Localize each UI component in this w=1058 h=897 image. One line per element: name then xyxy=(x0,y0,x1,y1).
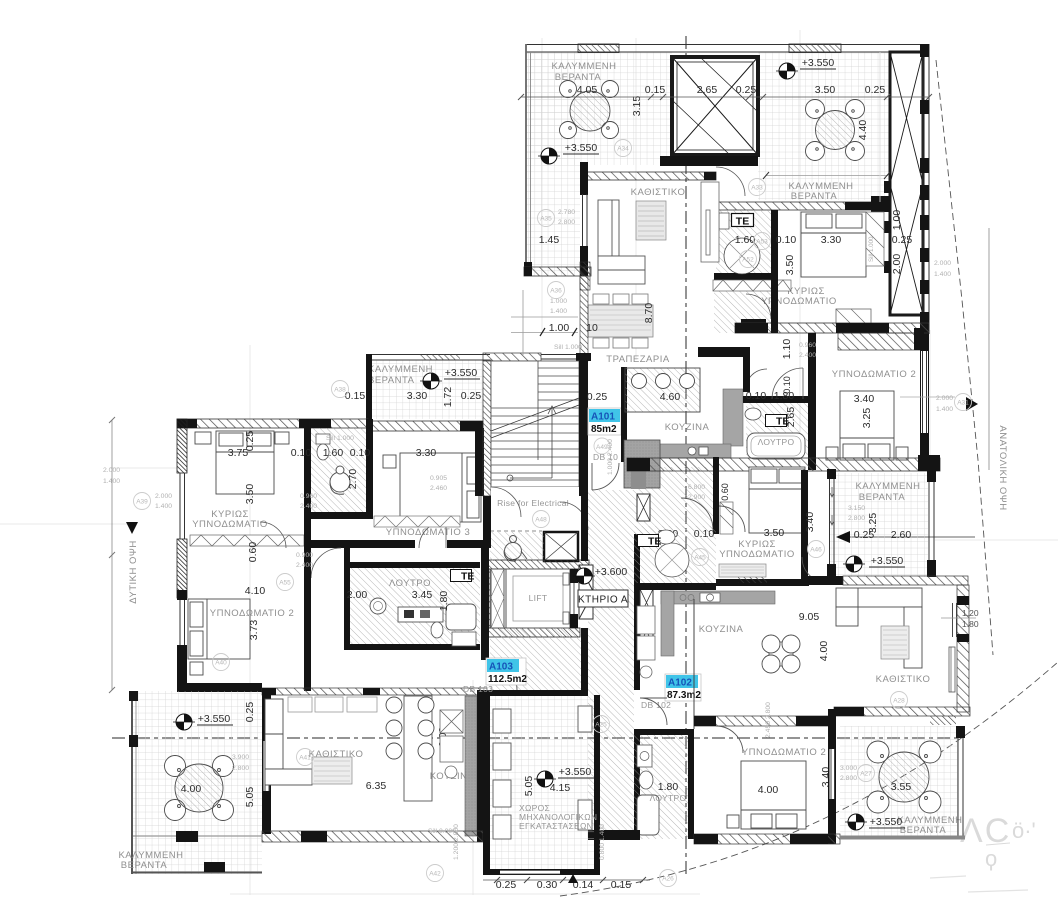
svg-text:4.10: 4.10 xyxy=(245,585,266,597)
svg-text:+3.550: +3.550 xyxy=(445,367,478,379)
svg-text:ΚΑΘΙΣΤΙΚΟ: ΚΑΘΙΣΤΙΚΟ xyxy=(876,674,931,685)
svg-text:+3.550: +3.550 xyxy=(559,766,592,778)
svg-text:3.000: 3.000 xyxy=(840,765,857,772)
svg-text:4.00: 4.00 xyxy=(758,784,779,796)
svg-text:+3.600: +3.600 xyxy=(595,566,628,578)
svg-text:ΤΕ: ΤΕ xyxy=(648,536,661,548)
svg-text:0.25: 0.25 xyxy=(496,879,517,891)
svg-text:3.30: 3.30 xyxy=(416,447,437,459)
svg-text:1.400: 1.400 xyxy=(936,406,953,413)
svg-text:A33: A33 xyxy=(751,185,763,192)
svg-text:0.960: 0.960 xyxy=(799,342,816,349)
svg-text:5.05: 5.05 xyxy=(523,776,535,797)
svg-text:ΚΟΥΖΙΝΑ: ΚΟΥΖΙΝΑ xyxy=(699,624,744,635)
svg-text:2.60: 2.60 xyxy=(891,529,912,541)
svg-text:ӧ·': ӧ·' xyxy=(1012,818,1036,843)
svg-text:ϙ: ϙ xyxy=(985,846,997,871)
svg-text:0.10: 0.10 xyxy=(776,234,797,246)
svg-text:2.800: 2.800 xyxy=(848,515,865,522)
svg-text:2.900: 2.900 xyxy=(688,494,705,501)
svg-text:A103: A103 xyxy=(489,662,513,673)
svg-text:0.10: 0.10 xyxy=(291,447,312,459)
svg-text:3.15: 3.15 xyxy=(631,96,643,117)
svg-text:A28: A28 xyxy=(893,698,905,705)
svg-text:ΕΓΚΑΤΑΣΤΑΣΕΩΝ: ΕΓΚΑΤΑΣΤΑΣΕΩΝ xyxy=(519,821,593,831)
svg-text:1.400: 1.400 xyxy=(934,271,951,278)
svg-text:ΤΕ: ΤΕ xyxy=(461,571,474,583)
svg-text:0.25: 0.25 xyxy=(892,234,913,246)
svg-text:A39: A39 xyxy=(136,499,148,506)
svg-text:1.000 2.400: 1.000 2.400 xyxy=(607,439,614,475)
svg-text:Rise for Electrical: Rise for Electrical xyxy=(497,498,569,508)
svg-text:2.000: 2.000 xyxy=(155,493,172,500)
svg-text:A26: A26 xyxy=(662,876,674,883)
svg-text:4.00: 4.00 xyxy=(818,641,830,662)
svg-text:1.400: 1.400 xyxy=(155,503,172,510)
svg-text:A34: A34 xyxy=(617,146,629,153)
svg-text:ΛΟΥΤΡΟ: ΛΟΥΤΡΟ xyxy=(389,578,431,589)
svg-text:A36: A36 xyxy=(550,288,562,295)
svg-text:0.15: 0.15 xyxy=(611,879,632,891)
svg-text:3.45: 3.45 xyxy=(412,589,433,601)
svg-text:0.960: 0.960 xyxy=(300,493,317,500)
svg-text:A41: A41 xyxy=(299,755,311,762)
svg-text:ΛΟΥΤΡΟ: ΛΟΥΤΡΟ xyxy=(758,437,795,447)
svg-text:+3.550: +3.550 xyxy=(802,57,835,69)
svg-text:4.60: 4.60 xyxy=(660,391,681,403)
svg-text:2.400: 2.400 xyxy=(300,503,317,510)
svg-text:0.800 1.400: 0.800 1.400 xyxy=(599,824,606,860)
svg-text:0.900: 0.900 xyxy=(296,552,313,559)
svg-text:4.40: 4.40 xyxy=(857,120,869,141)
svg-text:3.50: 3.50 xyxy=(244,484,256,505)
svg-text:1.10: 1.10 xyxy=(781,339,793,360)
svg-text:10: 10 xyxy=(586,322,598,334)
svg-text:0.25: 0.25 xyxy=(244,702,256,723)
svg-text:0.25: 0.25 xyxy=(244,431,256,452)
svg-text:1.000: 1.000 xyxy=(550,298,567,305)
svg-text:DB 102: DB 102 xyxy=(641,700,671,710)
svg-text:0.25: 0.25 xyxy=(461,390,482,402)
svg-text:+3.550: +3.550 xyxy=(198,713,231,725)
svg-text:ΔΥΤΙΚΗ ΟΨΗ: ΔΥΤΙΚΗ ΟΨΗ xyxy=(128,540,139,603)
svg-text:2.000: 2.000 xyxy=(103,467,120,474)
svg-text:0.905: 0.905 xyxy=(430,475,447,482)
svg-text:87.3m2: 87.3m2 xyxy=(667,690,701,701)
svg-text:2.000: 2.000 xyxy=(934,260,951,267)
svg-text:ΤΕ: ΤΕ xyxy=(736,216,749,228)
svg-text:85m2: 85m2 xyxy=(591,424,617,435)
svg-text:3.50: 3.50 xyxy=(784,255,796,276)
svg-text:2.800: 2.800 xyxy=(840,775,857,782)
svg-text:ΚΑΘΙΣΤΙΚΟ: ΚΑΘΙΣΤΙΚΟ xyxy=(631,187,686,198)
svg-text:2.800: 2.800 xyxy=(232,765,249,772)
svg-text:1.45: 1.45 xyxy=(539,234,560,246)
svg-text:A52: A52 xyxy=(742,257,754,264)
svg-text:+3.550: +3.550 xyxy=(871,555,904,567)
svg-text:A48: A48 xyxy=(535,517,547,524)
svg-text:0.10: 0.10 xyxy=(782,376,792,394)
svg-text:ΥΠΝΟΔΩΜΑΤΙΟ 2: ΥΠΝΟΔΩΜΑΤΙΟ 2 xyxy=(832,369,917,380)
svg-text:0.25: 0.25 xyxy=(865,84,886,96)
svg-text:ΥΠΝΟΔΩΜΑΤΙΟ 2: ΥΠΝΟΔΩΜΑΤΙΟ 2 xyxy=(742,747,827,758)
svg-text:0.60: 0.60 xyxy=(247,542,259,563)
svg-text:ΒΕΡΑΝΤΑ: ΒΕΡΑΝΤΑ xyxy=(555,72,602,83)
svg-text:ΑΝΑΤΟΛΙΚΗ ΟΨΗ: ΑΝΑΤΟΛΙΚΗ ΟΨΗ xyxy=(997,425,1008,510)
svg-text:ΥΠΝΟΔΩΜΑΤΙΟ: ΥΠΝΟΔΩΜΑΤΙΟ xyxy=(719,549,795,560)
svg-text:4.15: 4.15 xyxy=(550,782,571,794)
svg-text:+3.550: +3.550 xyxy=(870,816,903,828)
svg-text:1.60: 1.60 xyxy=(323,447,344,459)
svg-text:1.20: 1.20 xyxy=(962,608,979,618)
svg-text:6.800: 6.800 xyxy=(688,484,705,491)
svg-text:ΚΑΛΥΜΜΕΝΗ: ΚΑΛΥΜΜΕΝΗ xyxy=(368,364,433,375)
svg-text:ΒΕΡΑΝΤΑ: ΒΕΡΑΝΤΑ xyxy=(859,492,906,503)
svg-text:2.400: 2.400 xyxy=(799,352,816,359)
svg-text:112.5m2: 112.5m2 xyxy=(488,674,527,685)
svg-text:0.25: 0.25 xyxy=(736,84,757,96)
svg-text:ΥΠΝΟΔΩΜΑΤΙΟ 2: ΥΠΝΟΔΩΜΑΤΙΟ 2 xyxy=(210,608,295,619)
svg-text:ΥΠΝΟΔΩΜΑΤΙΟ: ΥΠΝΟΔΩΜΑΤΙΟ xyxy=(192,519,268,530)
svg-text:+3.550: +3.550 xyxy=(565,142,598,154)
svg-text:1.80: 1.80 xyxy=(962,619,979,629)
svg-text:A102: A102 xyxy=(668,678,692,689)
svg-text:2.65: 2.65 xyxy=(697,84,718,96)
svg-text:1.80: 1.80 xyxy=(438,591,450,612)
svg-text:2.65: 2.65 xyxy=(785,407,797,428)
svg-text:ΛC: ΛC xyxy=(960,812,1011,850)
svg-text:1.200 2.800: 1.200 2.800 xyxy=(453,824,460,860)
svg-text:2.00: 2.00 xyxy=(347,589,368,601)
svg-text:A27: A27 xyxy=(860,771,872,778)
svg-text:3.73: 3.73 xyxy=(248,620,260,641)
svg-text:A46: A46 xyxy=(810,547,822,554)
svg-text:2.000: 2.000 xyxy=(936,395,953,402)
svg-text:0.25: 0.25 xyxy=(587,391,608,403)
svg-text:3.50: 3.50 xyxy=(764,527,785,539)
svg-text:A53: A53 xyxy=(756,239,768,246)
svg-text:Sill 1.000: Sill 1.000 xyxy=(554,344,582,351)
svg-text:1.80: 1.80 xyxy=(658,781,679,793)
svg-text:1.60: 1.60 xyxy=(735,234,756,246)
svg-text:ΒΕΡΑΝΤΑ: ΒΕΡΑΝΤΑ xyxy=(900,825,947,836)
svg-text:3.30: 3.30 xyxy=(407,390,428,402)
svg-text:9.05: 9.05 xyxy=(799,611,820,623)
svg-text:ΚΟΥΖΙΝΑ: ΚΟΥΖΙΝΑ xyxy=(665,422,710,433)
svg-text:2.70: 2.70 xyxy=(347,469,359,490)
svg-text:2.800: 2.800 xyxy=(558,219,575,226)
svg-text:2.460: 2.460 xyxy=(430,485,447,492)
svg-text:4.00: 4.00 xyxy=(181,783,202,795)
svg-text:3.25: 3.25 xyxy=(867,513,879,534)
svg-text:1.00: 1.00 xyxy=(891,210,903,231)
svg-text:A31: A31 xyxy=(957,400,969,407)
svg-text:3.50: 3.50 xyxy=(815,84,836,96)
svg-text:A45: A45 xyxy=(694,555,706,562)
svg-text:0.15: 0.15 xyxy=(645,84,666,96)
svg-text:5.05: 5.05 xyxy=(244,787,256,808)
svg-text:3.40: 3.40 xyxy=(804,512,816,533)
svg-text:A25: A25 xyxy=(595,722,607,729)
svg-text:3.25: 3.25 xyxy=(861,408,873,429)
svg-text:1.72: 1.72 xyxy=(442,387,454,408)
svg-text:3.55: 3.55 xyxy=(891,781,912,793)
svg-text:Sill 1.000: Sill 1.000 xyxy=(868,236,875,262)
svg-text:8.70: 8.70 xyxy=(643,303,655,324)
svg-text:0.10: 0.10 xyxy=(350,447,371,459)
svg-text:A42: A42 xyxy=(429,871,441,878)
svg-text:A40: A40 xyxy=(215,660,227,667)
svg-text:ΥΠΝΟΔΩΜΑΤΙΟ 3: ΥΠΝΟΔΩΜΑΤΙΟ 3 xyxy=(386,527,471,538)
svg-text:4.05: 4.05 xyxy=(577,84,598,96)
svg-text:3.30: 3.30 xyxy=(821,234,842,246)
svg-text:2.450 2.800: 2.450 2.800 xyxy=(765,702,772,738)
svg-text:DB 103: DB 103 xyxy=(463,684,493,694)
svg-text:ΚΤΗΡΙΟ Α: ΚΤΗΡΙΟ Α xyxy=(578,595,628,606)
svg-text:A38: A38 xyxy=(334,387,346,394)
svg-text:Sill 1.000: Sill 1.000 xyxy=(326,435,354,442)
svg-text:2.00: 2.00 xyxy=(891,254,903,275)
svg-text:ΒΕΡΑΝΤΑ: ΒΕΡΑΝΤΑ xyxy=(368,375,415,386)
svg-text:2.400: 2.400 xyxy=(296,562,313,569)
svg-text:DB 10: DB 10 xyxy=(593,452,618,462)
svg-text:LIFT: LIFT xyxy=(529,593,548,603)
svg-text:1.400: 1.400 xyxy=(103,478,120,485)
svg-text:Sill 0.000: Sill 0.000 xyxy=(428,828,456,835)
svg-text:0.30: 0.30 xyxy=(537,879,558,891)
svg-text:A101: A101 xyxy=(591,412,615,423)
svg-text:ΤΡΑΠΕΖΑΡΙΑ: ΤΡΑΠΕΖΑΡΙΑ xyxy=(606,354,670,365)
svg-text:ΛΟΥΤΡΟ: ΛΟΥΤΡΟ xyxy=(650,793,687,803)
svg-text:3.900: 3.900 xyxy=(232,754,249,761)
svg-text:ΒΕΡΑΝΤΑ: ΒΕΡΑΝΤΑ xyxy=(121,860,168,871)
svg-text:2.780: 2.780 xyxy=(558,209,575,216)
svg-text:1.400: 1.400 xyxy=(550,308,567,315)
svg-text:ΚΑΛΥΜΜΕΝΗ: ΚΑΛΥΜΜΕΝΗ xyxy=(855,481,920,492)
svg-text:0.60: 0.60 xyxy=(720,483,730,501)
svg-text:ΒΕΡΑΝΤΑ: ΒΕΡΑΝΤΑ xyxy=(791,191,838,202)
svg-text:ΚΑΛΥΜΜΕΝΗ: ΚΑΛΥΜΜΕΝΗ xyxy=(551,61,616,72)
svg-text:A55: A55 xyxy=(279,580,291,587)
svg-text:A35: A35 xyxy=(540,216,552,223)
svg-text:6.35: 6.35 xyxy=(366,780,387,792)
svg-text:3.150: 3.150 xyxy=(848,505,865,512)
svg-text:3.40: 3.40 xyxy=(854,393,875,405)
